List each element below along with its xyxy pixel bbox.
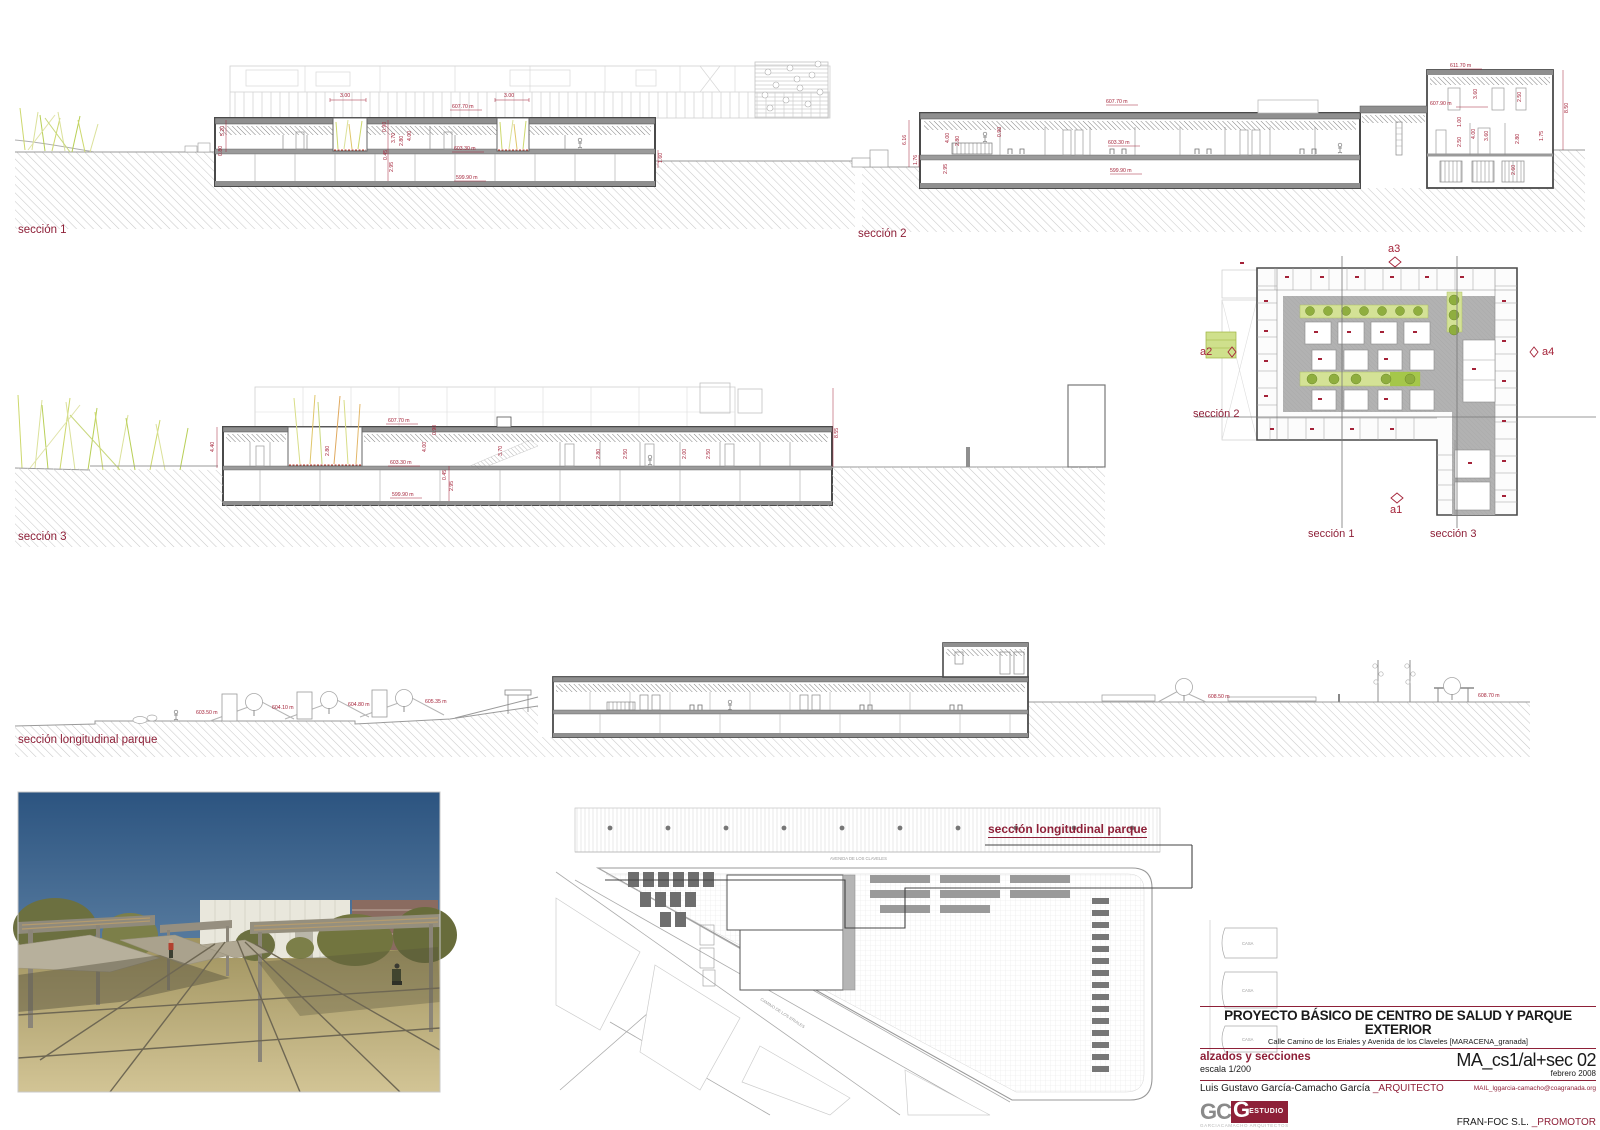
parking-column (1092, 898, 1109, 1072)
street-label: CAMINO DE LOS ERIALES (759, 997, 806, 1030)
sheet-date: febrero 2008 (1456, 1069, 1596, 1078)
plan-cut-seccion3: sección 3 (1430, 528, 1476, 540)
dim-label: 0.45 (442, 470, 448, 480)
level-label: 608.70 m (1478, 693, 1500, 699)
site-plan: AVENIDA DE LOS CLAVELES (556, 808, 1277, 1115)
dim-label: 1.76 (913, 155, 919, 165)
seccion-1-label: sección 1 (18, 224, 67, 236)
dim-label: 3.70 (391, 133, 397, 143)
divider (1200, 1048, 1596, 1049)
logo-estudio: ESTUDIO (1249, 1108, 1284, 1115)
dim-label: 4.00 (1471, 129, 1477, 139)
doc-type: alzados y secciones (1200, 1051, 1311, 1064)
dim-label: 5.20 (220, 126, 226, 136)
level-label: 603.30 m (390, 460, 412, 466)
level-label: 607.70 m (388, 418, 410, 424)
dim-label: 0.80 (218, 146, 224, 156)
dim-label: 3.60 (1484, 131, 1490, 141)
dim-label: 6.16 (902, 135, 908, 145)
dim-label: 2.50 (1517, 92, 1523, 102)
level-label: 608.50 m (1208, 694, 1230, 700)
dim-label: 3.00 (340, 93, 350, 99)
dim-label: 2.50 (623, 449, 629, 459)
reeds (18, 395, 188, 470)
dim-label: 2.80 (1515, 134, 1521, 144)
level-label: 604.10 m (272, 705, 294, 711)
architect-name: Luis Gustavo García-Camacho García (1200, 1083, 1370, 1094)
street-label: AVENIDA DE LOS CLAVELES (830, 856, 887, 861)
dim-label: 4.00 (422, 442, 428, 452)
scale: escala 1/200 (1200, 1064, 1311, 1075)
house-label: CASA (1242, 941, 1254, 946)
seccion-2-label: sección 2 (858, 228, 907, 240)
level-label: 607.70 m (1106, 99, 1128, 105)
dim-label: 3.00 (504, 93, 514, 99)
divider (1200, 1006, 1596, 1007)
seccion-1-drawing: 3.00 3.00 5.20 0.80 0.90 3.70 2.80 4.00 … (15, 61, 855, 229)
dim-label: 4.00 (945, 133, 951, 143)
reeds (20, 108, 98, 152)
seccion-longitudinal-label: sección longitudinal parque (18, 734, 157, 746)
level-label: 599.90 m (1110, 168, 1132, 174)
logo-gc-letters: GC (1200, 1099, 1231, 1124)
dim-label: 4.00 (407, 131, 413, 141)
tower (943, 643, 1028, 677)
dim-label: 8.50 (1564, 103, 1570, 113)
architect-mail: MAIL_lggarcia-camacho@coagranada.org (1474, 1083, 1596, 1095)
dim-label: 8.55 (834, 428, 840, 438)
plan-axis-a3: a3 (1388, 243, 1400, 255)
project-title: PROYECTO BÁSICO DE CENTRO DE SALUD Y PAR… (1200, 1009, 1596, 1037)
level-label: 611.70 m (1450, 63, 1471, 69)
architect-role: _ARQUITECTO (1373, 1083, 1444, 1094)
dim-label: 0.90 (997, 127, 1003, 137)
plan-axis-a1: a1 (1390, 504, 1402, 516)
plan-cut-seccion2: sección 2 (1193, 408, 1239, 420)
plan-axis-a2: a2 (1200, 346, 1212, 358)
dim-label: 2.80 (325, 446, 331, 456)
longitudinal-section-drawing: 603.50 m 604.10 m 604.80 m 605.35 m 608.… (15, 643, 1530, 757)
dim-label: 1.75 (1539, 131, 1545, 141)
dim-label: 3.60 (1473, 89, 1479, 99)
dim-label: 2.60 (1511, 165, 1517, 175)
dim-label: 1.60 (658, 153, 664, 163)
dim-label: 1.00 (1457, 117, 1463, 127)
level-label: 603.30 m (454, 146, 476, 152)
studio-logo: GCGESTUDIO GARCIACAMACHO ARQUITECTOS (1200, 1099, 1289, 1128)
dim-label: 3.70 (498, 446, 504, 456)
drawing-sheet: 3.00 3.00 5.20 0.80 0.90 3.70 2.80 4.00 … (0, 0, 1600, 1130)
seccion-3-label: sección 3 (18, 531, 67, 543)
dim-label: 2.95 (943, 164, 949, 174)
dim-label: 2.80 (955, 136, 961, 146)
logo-g-letter: G (1233, 1097, 1249, 1122)
plan-axis-a4: a4 (1542, 346, 1554, 358)
divider (1200, 1080, 1596, 1081)
sheet-drawings: 3.00 3.00 5.20 0.80 0.90 3.70 2.80 4.00 … (0, 0, 1600, 1130)
plan-cut-seccion1: sección 1 (1308, 528, 1354, 540)
promoter-name: FRAN-FOC S.L. (1457, 1117, 1529, 1128)
dim-label: 0.90 (432, 425, 438, 435)
dim-label: 2.80 (596, 449, 602, 459)
promoter-role: _PROMOTOR (1532, 1117, 1596, 1128)
dim-label: 0.45 (383, 150, 389, 160)
logo-subtext: GARCIACAMACHO ARQUITECTOS (1200, 1123, 1289, 1128)
person-standing (169, 939, 174, 958)
dim-label: 2.95 (449, 481, 455, 491)
title-block: PROYECTO BÁSICO DE CENTRO DE SALUD Y PAR… (1200, 1004, 1596, 1128)
floor-plan (1195, 256, 1596, 528)
level-label: 599.90 m (456, 175, 478, 181)
dim-label: 2.50 (1457, 137, 1463, 147)
dim-label: 2.00 (682, 449, 688, 459)
perforated-panel (755, 61, 828, 118)
dim-label: 4.40 (210, 442, 216, 452)
level-label: 599.90 m (392, 492, 414, 498)
dim-label: 2.80 (399, 136, 405, 146)
project-address: Calle Camino de los Eriales y Avenida de… (1200, 1037, 1596, 1046)
level-label: 604.80 m (348, 702, 370, 708)
house-label: CASA (1242, 988, 1254, 993)
dim-label: 0.90 (382, 122, 388, 132)
level-label: 605.35 m (425, 699, 447, 705)
dim-label: 2.95 (389, 162, 395, 172)
level-label: 603.30 m (1108, 140, 1130, 146)
young-trees (1373, 660, 1415, 702)
seccion-3-drawing: 4.40 2.80 0.90 4.00 0.45 2.95 3.70 2.80 … (15, 383, 1105, 547)
sheet-code: MA_cs1/al+sec 02 (1456, 1051, 1596, 1069)
level-label: 603.50 m (196, 710, 218, 716)
level-label: 607.70 m (452, 104, 474, 110)
park-pergolas (210, 690, 444, 722)
level-label: 607.90 m (1430, 101, 1452, 107)
seccion-2-drawing: 6.16 1.76 2.95 4.00 2.80 0.90 3.60 2.50 … (852, 63, 1585, 232)
dim-label: 2.50 (706, 449, 712, 459)
siteplan-cut-label: sección longitudinal parque (988, 822, 1147, 838)
tower (1360, 70, 1553, 188)
render-image (13, 792, 457, 1092)
